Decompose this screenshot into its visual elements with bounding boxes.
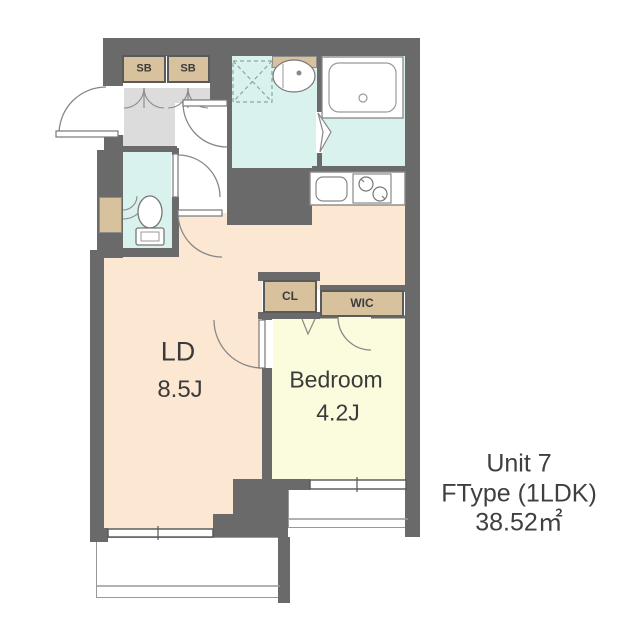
label-ld-size: 8.5J (157, 378, 202, 402)
unit-area: 38.52㎡ (475, 511, 563, 536)
floorplan-canvas: SB SB CL WIC LD 8.5J Bedroom 4.2J Unit 7… (0, 0, 640, 640)
room-ld-kitchen (312, 205, 405, 290)
label-sb-1: SB (136, 64, 151, 75)
meter-box (99, 197, 122, 233)
wall-top (103, 38, 420, 56)
wall-toilet-bottom (97, 248, 177, 257)
wall-left-ld (90, 250, 104, 542)
wall-left-foot (90, 528, 108, 542)
label-cl: CL (282, 290, 298, 302)
toilet-room (122, 152, 172, 248)
balcony-ld (96, 537, 280, 598)
wall-corridor-top (210, 56, 232, 103)
gap-toilet-door (171, 155, 179, 197)
label-wic: WIC (350, 297, 373, 309)
wall-right (405, 38, 420, 537)
wall-kitchen-back (312, 166, 405, 173)
room-bedroom (272, 316, 405, 480)
kitchen-counter (310, 172, 405, 205)
wall-entry-toilet (118, 146, 177, 152)
wall-pipe-slab (227, 168, 312, 225)
bathroom (322, 55, 405, 168)
label-bedroom-name: Bedroom (289, 369, 382, 392)
label-sb-2: SB (180, 64, 195, 75)
wall-balcony-divider (278, 537, 290, 603)
wall-toilet-right-bot (172, 196, 179, 257)
gap-bedroom-door (261, 320, 273, 368)
wall-step-1 (233, 479, 288, 537)
balcony-bedroom (288, 488, 408, 528)
wall-step-2 (213, 514, 235, 537)
label-ld-name: LD (161, 339, 196, 366)
unit-type: FType (1LDK) (441, 482, 597, 507)
stove-icon (353, 174, 391, 203)
wall-left-top (103, 38, 123, 88)
washroom (232, 55, 317, 170)
kitchen-sink-icon (316, 177, 347, 201)
gap-entrance-door (103, 86, 124, 135)
gap-bath-door (316, 112, 323, 153)
wall-cl-bottom (258, 312, 320, 319)
label-bedroom-size: 4.2J (316, 402, 359, 425)
unit-name: Unit 7 (486, 452, 551, 477)
corridor (175, 103, 227, 213)
room-ld-above-cl (262, 225, 312, 273)
vanity-counter (272, 56, 317, 68)
